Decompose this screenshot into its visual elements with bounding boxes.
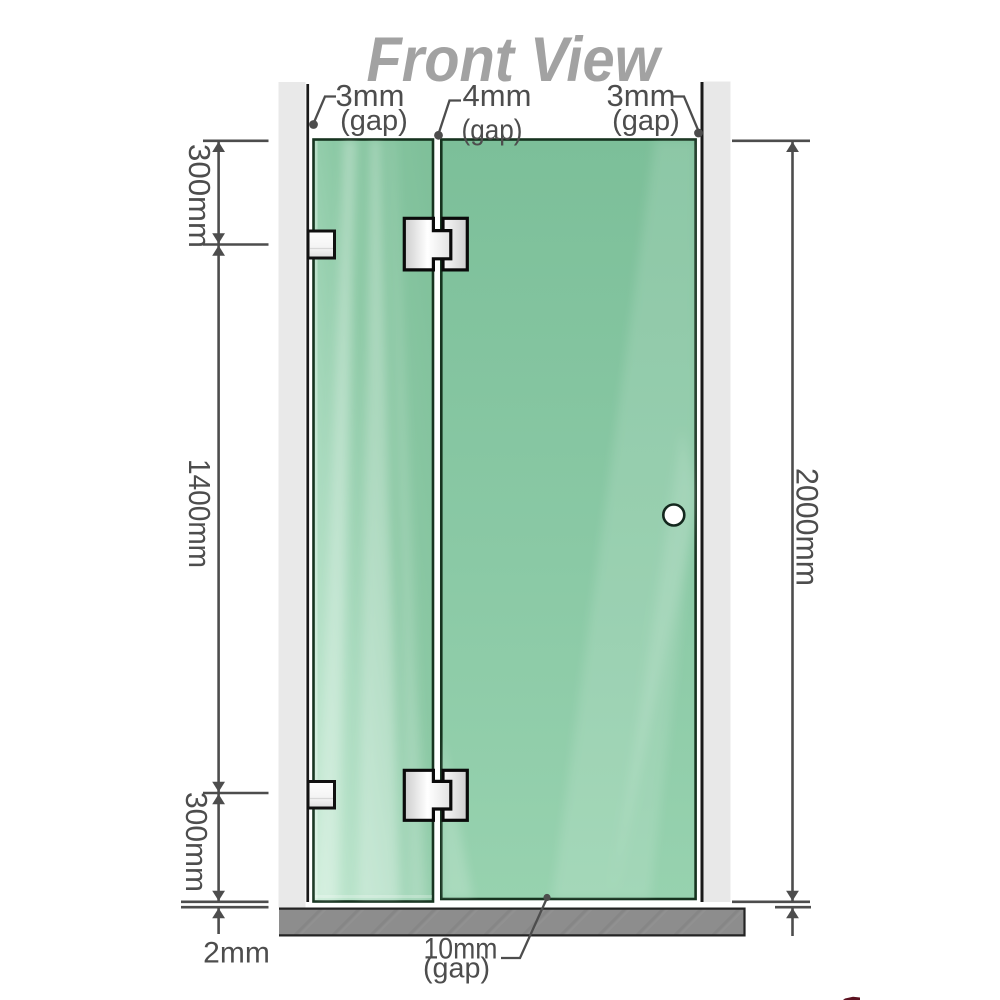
svg-text:(gap): (gap) [612, 105, 680, 137]
svg-text:2000mm: 2000mm [790, 468, 826, 586]
svg-text:300mm: 300mm [182, 144, 217, 248]
svg-text:(gap): (gap) [340, 105, 408, 137]
svg-text:(gap): (gap) [462, 115, 523, 147]
svg-text:4mm: 4mm [463, 78, 532, 113]
svg-text:(gap): (gap) [423, 953, 490, 985]
svg-text:1400mm: 1400mm [182, 459, 217, 568]
svg-text:300mm: 300mm [179, 792, 214, 892]
svg-text:2mm: 2mm [203, 937, 270, 970]
